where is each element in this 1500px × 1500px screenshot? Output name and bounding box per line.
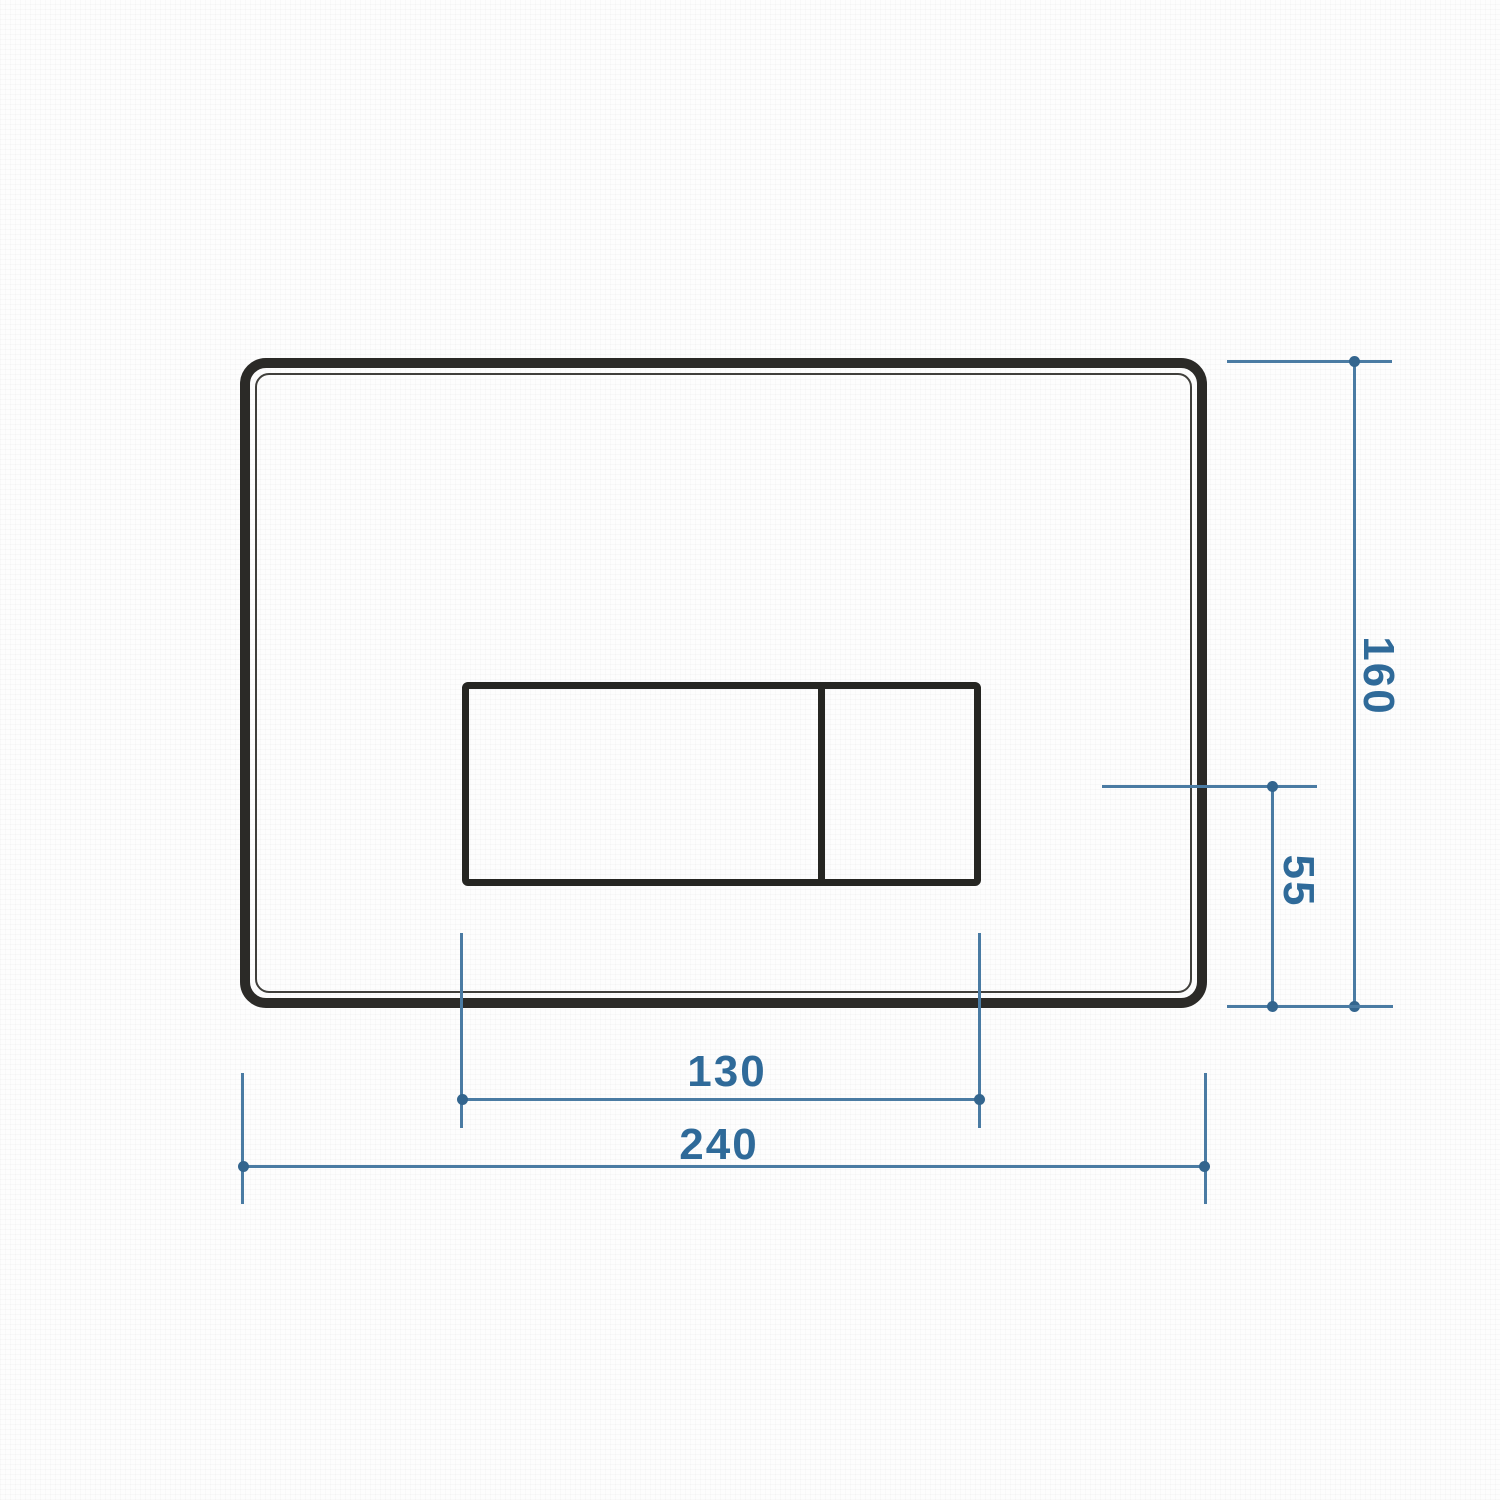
buttons-width-dot-left: [457, 1094, 468, 1105]
buttons-width-dimension-line: [462, 1098, 981, 1101]
plate-width-extension-line-left: [241, 1073, 244, 1204]
technical-drawing-canvas: 160 55 130 240: [0, 0, 1500, 1500]
plate-width-dot-right: [1199, 1161, 1210, 1172]
buttons-width-dot-right: [974, 1094, 985, 1105]
plate-width-extension-line-right: [1204, 1073, 1207, 1204]
plate-width-dot-left: [238, 1161, 249, 1172]
plate-width-dimension-label: 240: [679, 1123, 758, 1167]
flush-buttons-outline: [462, 682, 981, 886]
flush-button-divider: [818, 684, 825, 884]
height-extension-line-top: [1227, 360, 1392, 363]
offset-dimension-label: 55: [1276, 855, 1320, 908]
height-dimension-label: 160: [1356, 636, 1400, 715]
buttons-width-dimension-label: 130: [687, 1050, 766, 1094]
offset-extension-line-top: [1102, 785, 1317, 788]
offset-extension-line-bottom: [1227, 1005, 1393, 1008]
height-dimension-dot-top: [1349, 356, 1360, 367]
offset-dimension-dot-top: [1267, 781, 1278, 792]
offset-dimension-dot-bottom: [1267, 1001, 1278, 1012]
